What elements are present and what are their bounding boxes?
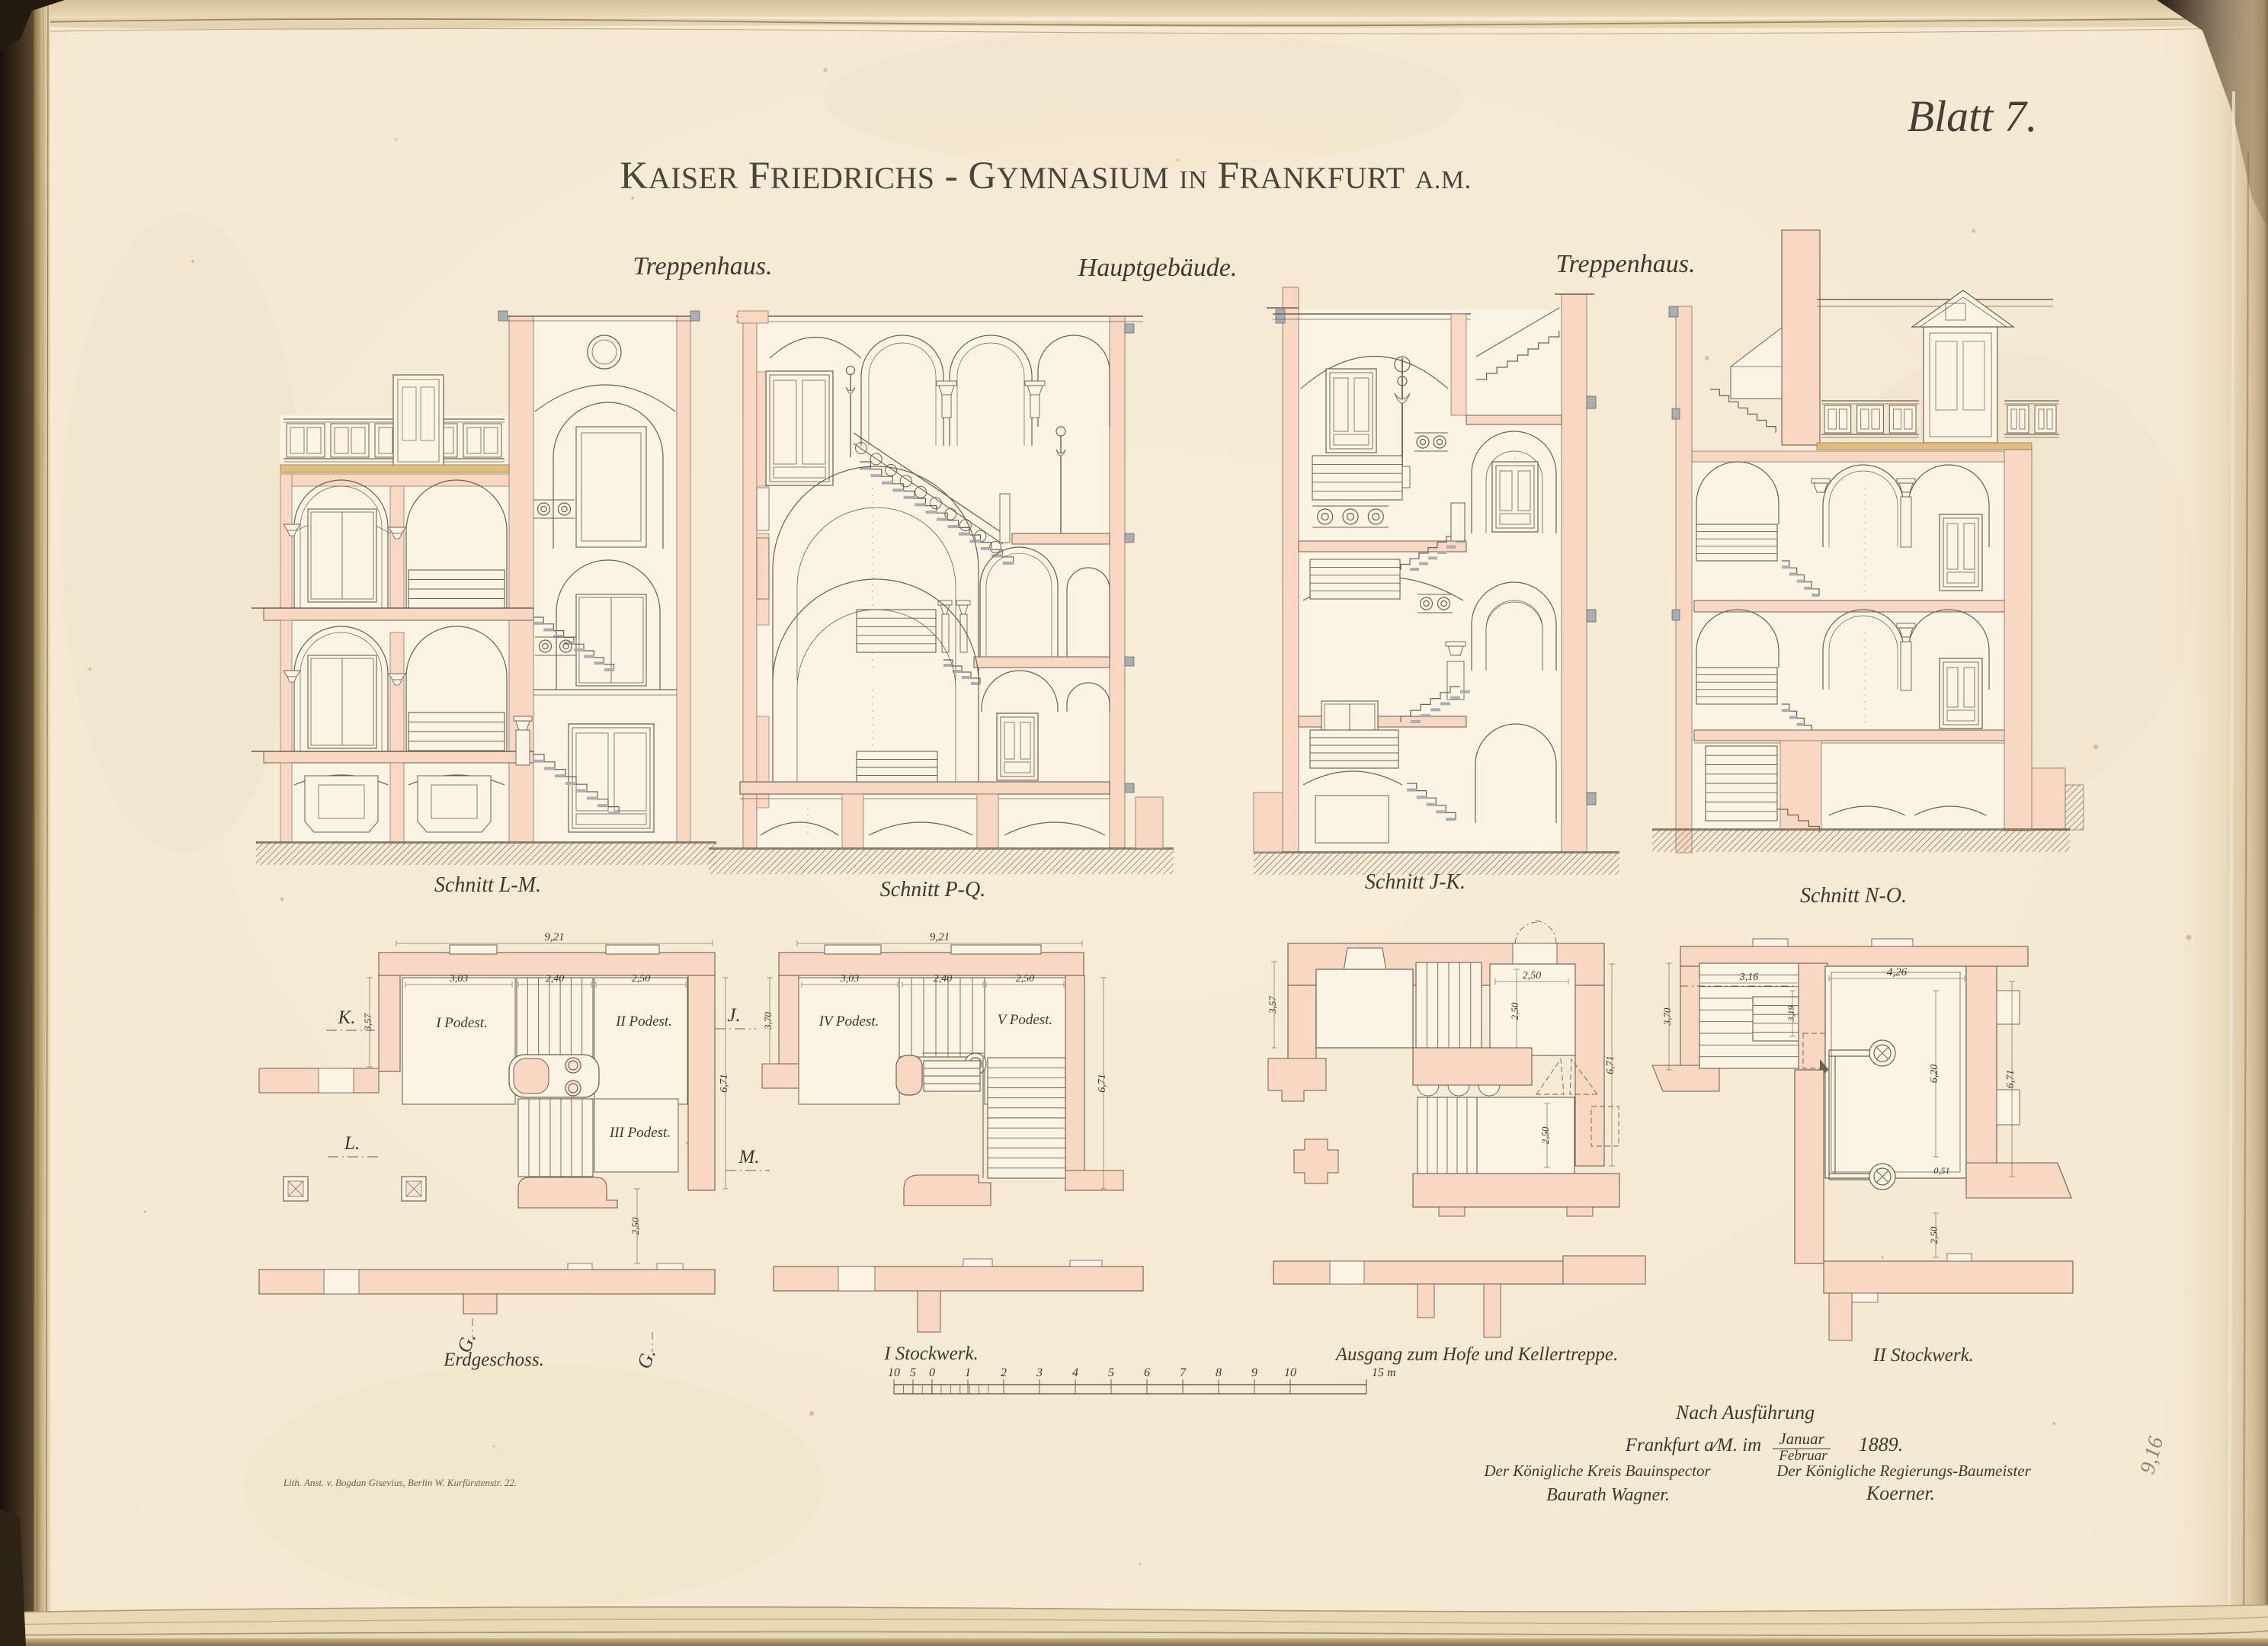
- svg-text:6,71: 6,71: [1605, 1055, 1616, 1074]
- svg-text:Treppenhaus.: Treppenhaus.: [633, 252, 773, 280]
- svg-text:6,71: 6,71: [1097, 1074, 1108, 1093]
- svg-text:Schnitt P-Q.: Schnitt P-Q.: [880, 878, 985, 901]
- svg-text:IV Podest.: IV Podest.: [818, 1014, 879, 1030]
- svg-text:15 m: 15 m: [1372, 1366, 1396, 1379]
- svg-text:3,19: 3,19: [1786, 1006, 1796, 1023]
- svg-text:M.: M.: [738, 1147, 759, 1167]
- svg-text:8: 8: [1216, 1366, 1222, 1379]
- svg-text:5: 5: [910, 1366, 916, 1379]
- svg-text:3,57: 3,57: [362, 1014, 373, 1032]
- svg-text:0: 0: [929, 1366, 935, 1379]
- svg-text:9,21: 9,21: [930, 931, 950, 943]
- svg-text:Treppenhaus.: Treppenhaus.: [1556, 250, 1696, 278]
- svg-text:KAISER FRIEDRICHS - GYMNASIUM: KAISER FRIEDRICHS - GYMNASIUM IN FRANKFU…: [620, 155, 1471, 197]
- svg-text:Schnitt N-O.: Schnitt N-O.: [1800, 884, 1907, 908]
- svg-text:I Stockwerk.: I Stockwerk.: [883, 1343, 979, 1364]
- svg-text:Schnitt J-K.: Schnitt J-K.: [1365, 870, 1466, 894]
- svg-text:2,50: 2,50: [632, 973, 651, 985]
- svg-text:3,57: 3,57: [1267, 996, 1278, 1014]
- svg-text:J.: J.: [727, 1005, 740, 1026]
- svg-text:1: 1: [965, 1366, 971, 1379]
- svg-text:V Podest.: V Podest.: [998, 1012, 1052, 1028]
- svg-text:6: 6: [1144, 1366, 1150, 1379]
- svg-text:5: 5: [1108, 1366, 1114, 1379]
- svg-text:Frankfurt a⁄M. im: Frankfurt a⁄M. im: [1625, 1435, 1761, 1455]
- svg-text:3,03: 3,03: [840, 973, 860, 985]
- svg-text:2,50: 2,50: [1539, 1126, 1551, 1144]
- svg-text:2,40: 2,40: [934, 973, 953, 985]
- svg-text:Blatt 7.: Blatt 7.: [1908, 91, 2038, 141]
- svg-text:2,50: 2,50: [1016, 973, 1035, 985]
- svg-text:Baurath Wagner.: Baurath Wagner.: [1546, 1485, 1670, 1505]
- svg-text:Hauptgebäude.: Hauptgebäude.: [1078, 254, 1238, 282]
- svg-text:K.: K.: [338, 1007, 356, 1028]
- svg-text:I Podest.: I Podest.: [435, 1015, 488, 1031]
- svg-text:7: 7: [1180, 1366, 1187, 1379]
- svg-text:9: 9: [1251, 1366, 1257, 1379]
- svg-text:Lith. Anst. v. Bogdan Gisevius: Lith. Anst. v. Bogdan Gisevius, Berlin W…: [283, 1477, 517, 1488]
- svg-text:9,21: 9,21: [544, 931, 564, 943]
- svg-text:Der Königliche Regierungs-Baum: Der Königliche Regierungs-Baumeister: [1776, 1462, 2031, 1480]
- svg-text:II Stockwerk.: II Stockwerk.: [1872, 1345, 1974, 1366]
- svg-text:Januar: Januar: [1779, 1430, 1824, 1448]
- svg-text:3,03: 3,03: [449, 973, 469, 985]
- svg-text:Koerner.: Koerner.: [1866, 1482, 1935, 1504]
- svg-text:Der Königliche Kreis Bauinspec: Der Königliche Kreis Bauinspector: [1483, 1462, 1711, 1480]
- svg-text:Schnitt L-M.: Schnitt L-M.: [434, 873, 541, 897]
- svg-text:6,20: 6,20: [1929, 1065, 1940, 1084]
- svg-text:Ausgang zum Hofe und Kellertre: Ausgang zum Hofe und Kellertreppe.: [1334, 1344, 1619, 1365]
- svg-text:3: 3: [1036, 1366, 1043, 1379]
- svg-text:2,50: 2,50: [1928, 1226, 1940, 1244]
- svg-text:3,70: 3,70: [762, 1012, 774, 1030]
- svg-text:0,51: 0,51: [1934, 1165, 1950, 1176]
- svg-text:10: 10: [1284, 1366, 1296, 1379]
- svg-text:3,70: 3,70: [1661, 1007, 1673, 1026]
- svg-text:2,50: 2,50: [1523, 970, 1542, 982]
- svg-text:1889.: 1889.: [1859, 1433, 1904, 1455]
- svg-text:L.: L.: [344, 1133, 360, 1154]
- svg-text:2,50: 2,50: [1509, 1002, 1520, 1020]
- svg-text:3,16: 3,16: [1739, 972, 1759, 983]
- svg-text:6,71: 6,71: [719, 1074, 730, 1093]
- svg-text:2,40: 2,40: [546, 973, 565, 985]
- svg-text:6,71: 6,71: [2005, 1070, 2017, 1089]
- svg-text:2: 2: [1001, 1366, 1007, 1379]
- svg-text:III Podest.: III Podest.: [609, 1125, 671, 1141]
- svg-text:10: 10: [888, 1366, 900, 1379]
- svg-text:4: 4: [1072, 1366, 1078, 1379]
- svg-text:Nach Ausführung: Nach Ausführung: [1675, 1401, 1815, 1423]
- svg-text:2,50: 2,50: [629, 1217, 641, 1234]
- svg-text:II Podest.: II Podest.: [615, 1014, 672, 1030]
- svg-text:Erdgeschoss.: Erdgeschoss.: [443, 1350, 544, 1370]
- svg-text:4,26: 4,26: [1887, 966, 1908, 978]
